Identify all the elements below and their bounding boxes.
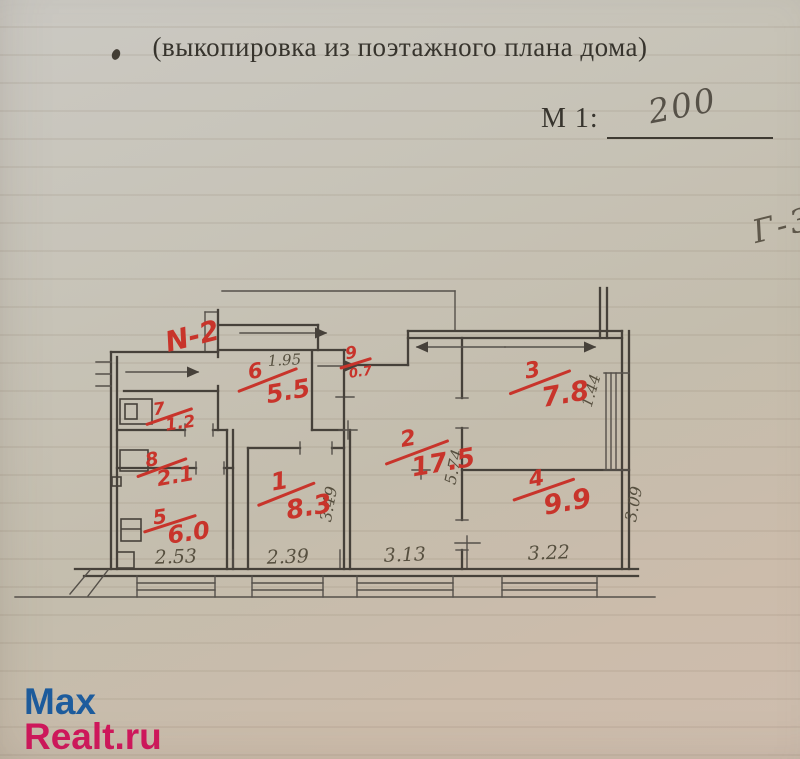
site-watermark: Max Realt.ru — [24, 685, 162, 755]
svg-text:3: 3 — [523, 357, 542, 384]
svg-text:5.5: 5.5 — [264, 373, 313, 409]
floor-plan-drawing: 1.95 2.53 2.39 3.13 3.22 3.49 5.74 1.44 … — [0, 0, 800, 759]
svg-text:1: 1 — [269, 466, 290, 496]
svg-text:1.2: 1.2 — [164, 412, 197, 436]
svg-text:2.1: 2.1 — [155, 461, 196, 491]
svg-text:0.7: 0.7 — [348, 364, 374, 382]
room-4-label: 4 9.9 — [509, 458, 593, 526]
svg-text:6: 6 — [246, 358, 265, 384]
dim-bottom-3: 3.13 — [383, 543, 426, 566]
dim-bottom-2: 2.39 — [265, 545, 309, 568]
dim-top: 1.95 — [267, 350, 301, 370]
building-outline — [205, 291, 455, 352]
room-3-label: 3 7.8 — [505, 350, 592, 420]
watermark-line2: Realt.ru — [24, 720, 162, 755]
svg-text:6.0: 6.0 — [166, 516, 212, 550]
stove-fixture — [121, 519, 141, 541]
watermark-line1: Max — [24, 685, 162, 720]
dim-bottom-1: 2.53 — [153, 545, 197, 568]
dim-bottom-4: 3.22 — [527, 541, 570, 564]
room-1-label: 1 8.3 — [253, 459, 334, 531]
svg-text:2: 2 — [399, 426, 418, 453]
dim-room4-depth: 3.09 — [621, 485, 646, 523]
sink-fixture — [117, 552, 134, 568]
svg-text:9: 9 — [344, 343, 359, 364]
svg-text:17.5: 17.5 — [409, 443, 477, 484]
scanned-floorplan-page: (выкопировка из поэтажного плана дома) М… — [0, 0, 800, 759]
room-5-label: 5 6.0 — [141, 498, 211, 553]
room-labels: N-2 7 1.2 8 2.1 5 6.0 6 5.5 — [134, 314, 594, 553]
